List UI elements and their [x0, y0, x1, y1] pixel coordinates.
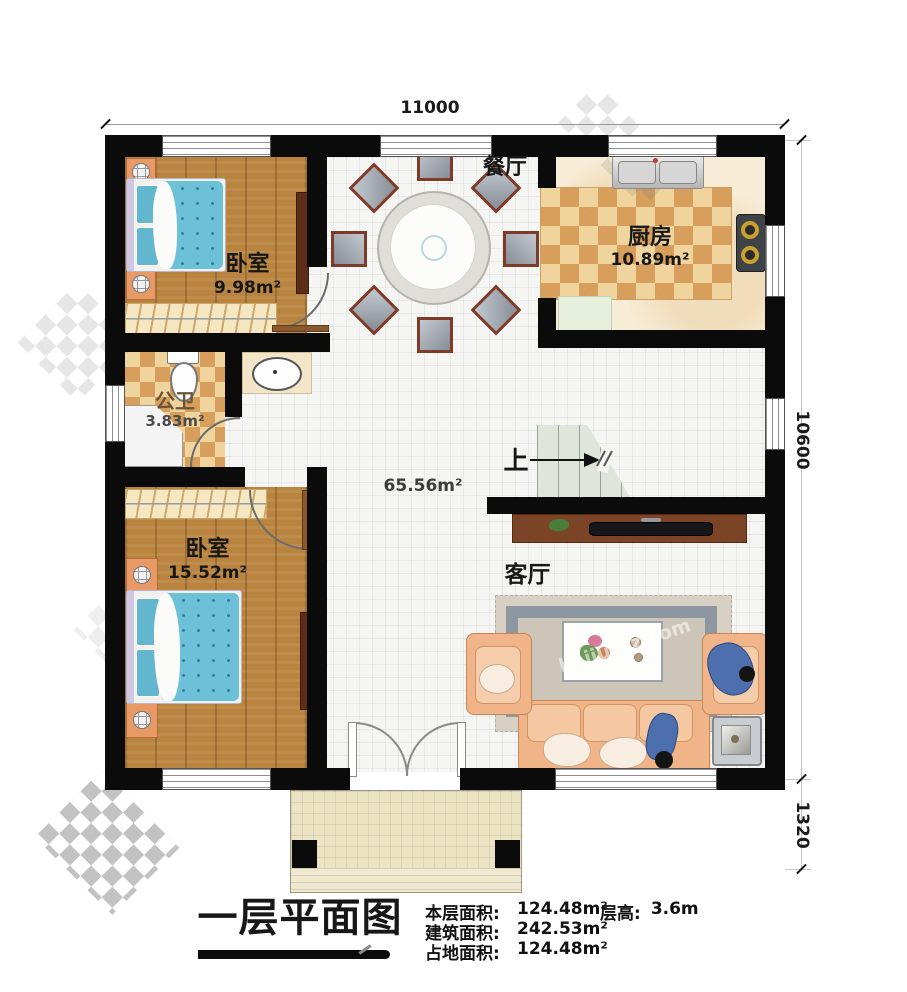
wall-bathroom-bottom — [105, 467, 245, 487]
stairs-direction-line — [530, 459, 586, 461]
kitchen-sink-unit — [612, 155, 704, 189]
wall-bottom — [105, 768, 162, 790]
tv-screen — [589, 522, 713, 536]
bedroom2-label: 卧室 — [160, 538, 255, 562]
stat-footprint-area: 占地面积: 124.48m² — [425, 939, 608, 964]
dimension-right-upper-value: 10600 — [792, 395, 812, 485]
armchair-pillow — [479, 664, 515, 694]
window — [162, 768, 271, 790]
window — [162, 135, 271, 157]
bedroom2-bed — [126, 590, 242, 704]
stove-burner — [741, 246, 759, 264]
wall-bedroom1-bottom — [105, 333, 330, 352]
wall-bottom — [715, 768, 785, 790]
stat-floor-height: 层高: 3.6m — [600, 899, 699, 924]
wall-bedroom2-right — [307, 467, 327, 772]
wall-bathroom-right — [225, 352, 242, 417]
porch-pillar-right — [495, 840, 520, 868]
porch-step-band — [290, 868, 522, 893]
wall-kitchen-left — [538, 157, 556, 188]
bed-headboard — [127, 179, 134, 271]
porch-floor — [290, 790, 522, 870]
plan-title: 一层平面图 — [195, 896, 405, 940]
bedroom1-wardrobe — [125, 303, 277, 335]
window — [765, 225, 785, 297]
dining-label: 餐厅 — [470, 156, 540, 180]
kitchen-stove — [736, 214, 766, 272]
sink-basin — [659, 161, 697, 184]
wall-stairs — [487, 497, 785, 514]
dimension-line-top — [105, 124, 785, 125]
stove-burner — [741, 221, 759, 239]
bedroom2-wardrobe — [125, 489, 267, 519]
window — [380, 135, 492, 157]
tv-stand — [641, 518, 661, 522]
wall-kitchen-bottom — [538, 330, 785, 348]
basin-drain — [273, 370, 277, 374]
floor-plan-canvas: 餐厅 厨房 10.89m² 卧室 9.98m² 公卫 3.83m² 卧室 15.… — [0, 0, 907, 992]
bed-headboard — [127, 591, 134, 703]
armchair-right — [702, 633, 768, 715]
armchair-left — [466, 633, 532, 715]
wall-bottom — [460, 768, 555, 790]
wall-right — [765, 135, 785, 225]
bedroom2-nightstand-top — [126, 558, 158, 592]
wall-top — [490, 135, 608, 157]
kitchen-label: 厨房 — [600, 226, 700, 250]
porch-pillar-left — [292, 840, 317, 868]
dimension-right-lower-value: 1320 — [792, 795, 812, 855]
window — [555, 768, 717, 790]
hall-area: 65.56m² — [368, 477, 478, 496]
dining-table — [377, 191, 491, 305]
wall-left — [105, 440, 125, 790]
sofa-pillow — [599, 737, 647, 769]
sink-faucet — [653, 158, 658, 163]
basin-sink — [252, 357, 302, 391]
bedroom2-area: 15.52m² — [160, 564, 255, 583]
wall-kitchen-left — [538, 298, 556, 332]
sink-basin — [618, 161, 656, 184]
side-table — [712, 716, 762, 766]
bedroom1-area: 9.98m² — [200, 279, 295, 298]
dining-chair — [417, 317, 453, 353]
living-label: 客厅 — [480, 563, 575, 588]
bedroom1-door-leaf — [272, 325, 329, 332]
stat-label: 占地面积: — [425, 939, 517, 964]
bathroom-label: 公卫 — [135, 390, 215, 412]
dining-chair — [503, 231, 539, 267]
sofa — [518, 700, 710, 774]
kitchen-area: 10.89m² — [600, 251, 700, 270]
dining-table-center — [421, 235, 447, 261]
wall-top — [269, 135, 380, 157]
stat-value: 3.6m — [651, 899, 699, 924]
stat-label: 层高: — [600, 899, 641, 924]
stat-value: 124.48m² — [517, 939, 608, 964]
side-table-knob — [731, 735, 739, 743]
dimension-top-value: 11000 — [380, 98, 480, 118]
bathroom-area: 3.83m² — [135, 413, 215, 430]
window — [765, 398, 785, 450]
table-item — [634, 653, 643, 662]
tv-cabinet — [512, 514, 747, 543]
stairs-up-label: 上 — [500, 447, 532, 475]
wall-bedroom1-right — [307, 157, 327, 267]
person-head — [739, 666, 755, 682]
kitchen-mat — [558, 296, 612, 332]
plant-decor — [549, 519, 569, 531]
sofa-pillow — [543, 733, 591, 767]
window — [608, 135, 717, 157]
person-head — [655, 751, 673, 769]
dining-chair — [331, 231, 367, 267]
bedroom1-label: 卧室 — [200, 253, 295, 277]
bedroom1-nightstand-bottom — [126, 268, 156, 300]
window — [105, 385, 125, 442]
bedroom2-nightstand-bottom — [126, 702, 158, 738]
watermark-logo — [35, 770, 180, 915]
